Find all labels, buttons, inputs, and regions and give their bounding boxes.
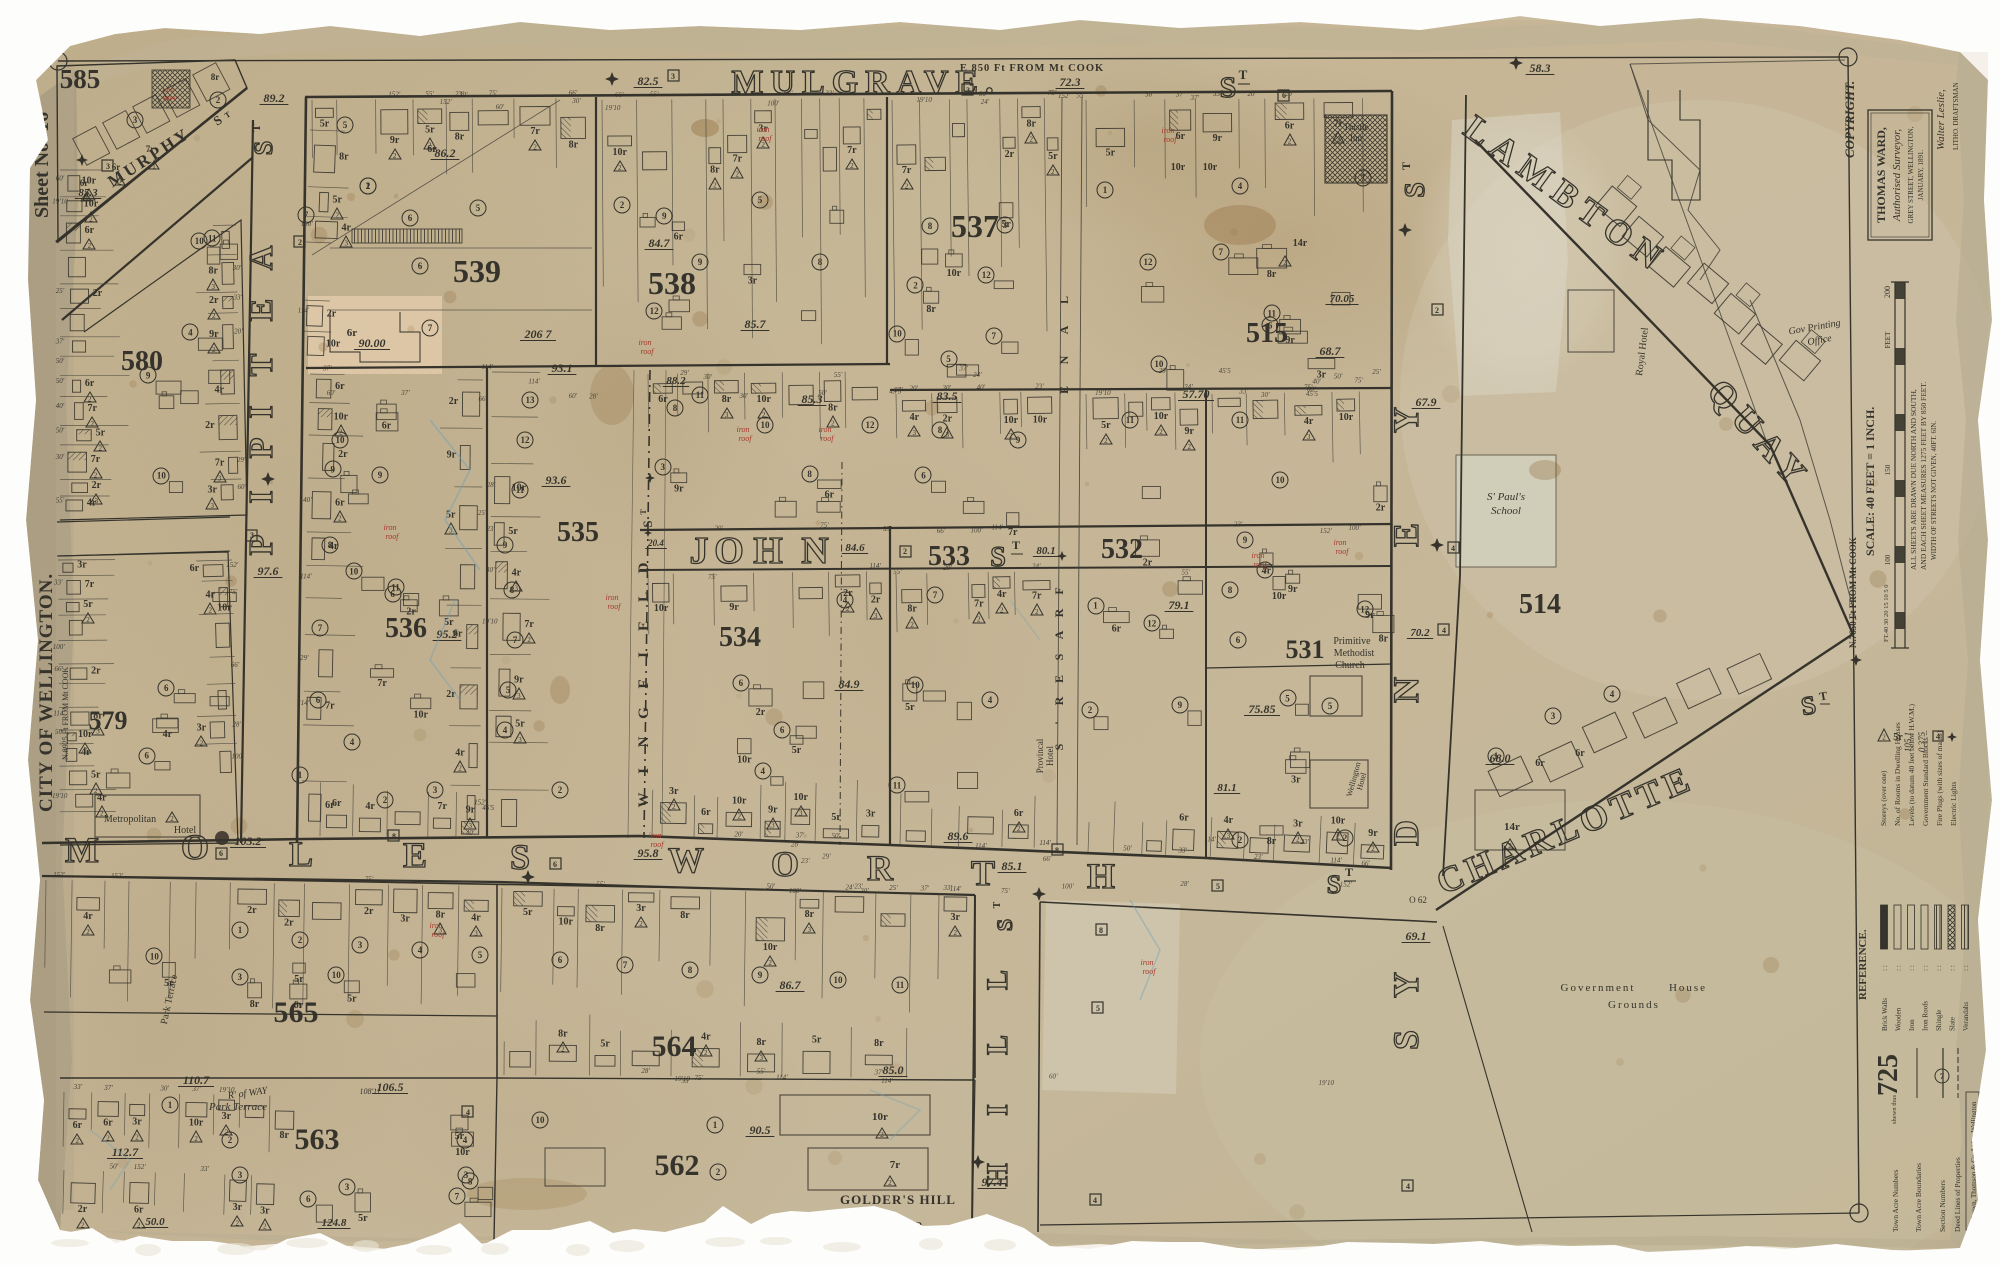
svg-text:2: 2 <box>905 182 909 190</box>
svg-text:5: 5 <box>343 120 348 130</box>
svg-text:2: 2 <box>1051 168 1055 176</box>
svg-text:3r: 3r <box>197 722 207 733</box>
svg-text:3r: 3r <box>669 786 679 797</box>
svg-text:24': 24' <box>1032 562 1041 570</box>
svg-text:5r: 5r <box>96 427 106 438</box>
svg-text:Grounds: Grounds <box>1608 999 1660 1011</box>
svg-text:S: S <box>992 919 1017 931</box>
svg-text:24': 24' <box>973 371 982 379</box>
svg-text:725: 725 <box>1873 1054 1904 1096</box>
svg-text:20.4: 20.4 <box>647 538 664 548</box>
svg-text:2: 2 <box>1187 443 1191 451</box>
svg-text:roof: roof <box>431 930 446 939</box>
svg-text:Electric Lights: Electric Lights <box>1949 782 1958 826</box>
svg-text:3: 3 <box>661 462 666 472</box>
svg-text:10r: 10r <box>756 394 771 405</box>
svg-text:585: 585 <box>60 64 101 94</box>
svg-text:2: 2 <box>736 171 740 179</box>
svg-text:7r: 7r <box>377 678 387 689</box>
svg-text:12: 12 <box>982 270 992 280</box>
svg-text:37': 37' <box>1175 90 1185 98</box>
svg-text:4: 4 <box>466 1108 470 1117</box>
svg-text:1: 1 <box>713 1120 718 1130</box>
svg-text:Town Acre Boundaries: Town Acre Boundaries <box>1914 1163 1923 1232</box>
svg-text:19'10: 19'10 <box>1095 389 1111 397</box>
svg-text:8r: 8r <box>756 1037 766 1048</box>
svg-text:45'5: 45'5 <box>1306 390 1318 398</box>
svg-text:40': 40' <box>1313 378 1322 386</box>
svg-text:4: 4 <box>761 766 766 776</box>
svg-text:S: S <box>640 520 655 527</box>
svg-text:3r: 3r <box>400 914 410 925</box>
svg-text:I: I <box>981 1104 1014 1116</box>
svg-text:6: 6 <box>316 695 321 705</box>
svg-text:6r: 6r <box>85 378 95 389</box>
svg-text:66': 66' <box>937 527 946 535</box>
svg-text:11: 11 <box>208 233 217 243</box>
svg-text:6r: 6r <box>825 490 835 501</box>
svg-text:2: 2 <box>672 803 676 811</box>
svg-text:4: 4 <box>843 595 848 605</box>
svg-text:Walter Leslie,: Walter Leslie, <box>1935 89 1947 150</box>
svg-text:AND EACH SHEET MEASURES 1275 F: AND EACH SHEET MEASURES 1275 FEET BY 850… <box>1919 382 1928 570</box>
svg-text:Verandahs: Verandahs <box>1962 1002 1970 1031</box>
svg-text:6: 6 <box>306 1194 311 1204</box>
svg-text:3r: 3r <box>1291 774 1301 785</box>
svg-text:7: 7 <box>1219 247 1224 257</box>
svg-text:2: 2 <box>561 1045 565 1053</box>
svg-text:5: 5 <box>1285 693 1290 703</box>
svg-text:8r: 8r <box>874 1038 884 1049</box>
svg-text:114': 114' <box>528 378 540 386</box>
svg-text:10: 10 <box>911 680 921 690</box>
svg-text:5: 5 <box>478 950 483 960</box>
svg-text:2r: 2r <box>1143 557 1153 568</box>
svg-text:2: 2 <box>200 739 204 747</box>
svg-text:10r: 10r <box>1331 816 1346 827</box>
svg-text:REFERENCE.: REFERENCE. <box>1857 929 1869 1000</box>
svg-text:33': 33' <box>942 884 952 892</box>
svg-text:152': 152' <box>53 871 66 879</box>
svg-text:20': 20' <box>714 525 723 533</box>
svg-text:L: L <box>1057 296 1071 304</box>
svg-text:60': 60' <box>1049 1072 1058 1080</box>
svg-text:Fire Plugs (with sizes of main: Fire Plugs (with sizes of mains) <box>1935 730 1944 826</box>
svg-text:6r: 6r <box>1575 748 1585 759</box>
svg-text:85.7: 85.7 <box>745 317 767 331</box>
svg-text:50': 50' <box>110 1162 119 1170</box>
svg-text:66': 66' <box>1043 855 1052 863</box>
svg-text:5r: 5r <box>515 719 525 730</box>
svg-text:D: D <box>636 562 652 573</box>
svg-text:Slate: Slate <box>1949 1017 1957 1031</box>
svg-text:7r: 7r <box>847 145 857 156</box>
svg-text:iron: iron <box>648 831 661 840</box>
svg-text:23': 23' <box>1254 853 1263 861</box>
svg-text:83.5: 83.5 <box>937 389 958 403</box>
svg-text:2r: 2r <box>1005 149 1015 160</box>
svg-text:5r: 5r <box>508 526 518 537</box>
svg-text:Shingle: Shingle <box>1935 1010 1943 1031</box>
svg-text:10: 10 <box>332 970 342 980</box>
svg-text:8r: 8r <box>436 910 446 921</box>
svg-text:60': 60' <box>496 103 505 111</box>
svg-text:4: 4 <box>503 725 508 735</box>
svg-text:6: 6 <box>1282 91 1286 100</box>
svg-text:10r: 10r <box>872 1111 888 1123</box>
svg-text:JANUARY, 1891.: JANUARY, 1891. <box>1917 149 1925 200</box>
svg-text:2: 2 <box>1343 833 1348 843</box>
svg-text:8: 8 <box>1055 846 1059 855</box>
svg-text:4: 4 <box>988 695 993 705</box>
svg-text:12: 12 <box>1147 618 1157 628</box>
svg-text:84.7: 84.7 <box>649 236 671 250</box>
svg-text:86.2: 86.2 <box>435 146 456 160</box>
svg-text:N: N <box>801 530 828 572</box>
svg-text:8r: 8r <box>558 1028 568 1039</box>
svg-text:11: 11 <box>893 781 902 791</box>
svg-text:3r: 3r <box>636 903 646 914</box>
svg-text:4r: 4r <box>83 911 93 922</box>
svg-text:10r: 10r <box>793 792 808 803</box>
svg-text:50': 50' <box>56 377 65 385</box>
svg-text:5r: 5r <box>812 1034 822 1045</box>
svg-text:50': 50' <box>1334 372 1343 380</box>
svg-text:Church: Church <box>1335 660 1364 671</box>
svg-text:2: 2 <box>106 1135 110 1143</box>
svg-text:6: 6 <box>780 725 785 735</box>
svg-text:539: 539 <box>453 253 501 289</box>
svg-text:70.2: 70.2 <box>1410 627 1430 639</box>
svg-text:10r: 10r <box>334 412 349 423</box>
svg-text:531: 531 <box>1286 635 1325 664</box>
svg-text:2: 2 <box>335 212 339 220</box>
svg-text:2r: 2r <box>338 449 348 460</box>
svg-text:66': 66' <box>1362 859 1371 867</box>
svg-text:28': 28' <box>1180 880 1189 888</box>
svg-text:2: 2 <box>76 1137 80 1145</box>
svg-text:10r: 10r <box>1171 162 1186 173</box>
svg-text:55': 55' <box>1182 568 1191 576</box>
svg-text:roof: roof <box>1335 547 1350 556</box>
svg-text:5: 5 <box>758 195 763 205</box>
svg-text:7r: 7r <box>524 619 534 630</box>
svg-text:T: T <box>1012 538 1020 552</box>
svg-text:6r: 6r <box>332 798 342 809</box>
svg-text:Brick Walls: Brick Walls <box>1881 998 1889 1031</box>
svg-text:2r: 2r <box>209 295 219 306</box>
svg-text:37': 37' <box>400 389 410 397</box>
svg-text:79.1: 79.1 <box>1169 598 1190 612</box>
svg-text:3: 3 <box>218 475 222 483</box>
svg-text:19'10: 19'10 <box>52 197 68 205</box>
svg-text:68.7: 68.7 <box>1320 344 1342 358</box>
svg-text:12: 12 <box>521 435 531 445</box>
svg-text:72.3: 72.3 <box>1060 75 1081 89</box>
svg-text:82.5: 82.5 <box>638 74 659 88</box>
svg-text:5r: 5r <box>600 1038 610 1049</box>
svg-text:9r: 9r <box>768 804 778 815</box>
svg-text:8r: 8r <box>569 140 579 151</box>
svg-text:4: 4 <box>350 737 355 747</box>
svg-text:4r: 4r <box>455 748 465 759</box>
svg-text:1: 1 <box>298 770 303 780</box>
svg-text:T: T <box>639 509 648 515</box>
svg-text:4: 4 <box>463 1135 468 1145</box>
svg-text:515: 515 <box>1246 318 1288 349</box>
svg-text:30': 30' <box>159 1085 169 1093</box>
svg-text:roof: roof <box>1253 560 1268 569</box>
svg-text:A: A <box>1057 325 1071 334</box>
svg-text:R: R <box>1052 608 1066 617</box>
svg-text:75.85: 75.85 <box>1249 702 1276 716</box>
svg-text:9: 9 <box>698 257 703 267</box>
svg-text:75': 75' <box>708 573 717 581</box>
svg-text:10r: 10r <box>1004 415 1019 426</box>
svg-text:N: N <box>1057 355 1071 364</box>
svg-text:2: 2 <box>383 795 388 805</box>
svg-text:8r: 8r <box>805 909 815 920</box>
svg-text:1: 1 <box>238 925 243 935</box>
svg-text:2: 2 <box>1159 428 1163 436</box>
svg-text:T: T <box>243 353 280 376</box>
svg-text:7: 7 <box>428 323 433 333</box>
svg-text:114': 114' <box>1330 857 1342 865</box>
svg-text:8: 8 <box>938 425 943 435</box>
svg-text:535: 535 <box>557 517 599 548</box>
svg-text:2: 2 <box>1029 136 1033 144</box>
svg-text:6r: 6r <box>335 381 345 392</box>
svg-text:6: 6 <box>219 849 223 858</box>
svg-text:75': 75' <box>229 588 238 596</box>
svg-text:3r: 3r <box>1293 818 1303 829</box>
svg-text:100': 100' <box>789 887 802 895</box>
svg-text:114': 114' <box>869 562 881 570</box>
svg-text:7: 7 <box>318 623 323 633</box>
svg-text:5r: 5r <box>332 195 342 206</box>
svg-text:: :: : : <box>1922 965 1930 971</box>
svg-text:2r: 2r <box>91 666 101 677</box>
svg-text:90.5: 90.5 <box>750 1123 771 1137</box>
svg-text:2r: 2r <box>93 288 103 299</box>
svg-text:4: 4 <box>418 945 423 955</box>
svg-text:19'10: 19'10 <box>482 618 498 626</box>
svg-text:67.9: 67.9 <box>1416 395 1437 409</box>
svg-text:37': 37' <box>795 832 805 840</box>
svg-text:6r: 6r <box>1535 758 1545 769</box>
svg-text:23': 23' <box>1234 521 1243 529</box>
svg-text:2: 2 <box>1104 437 1108 445</box>
svg-text:3: 3 <box>433 785 438 795</box>
svg-text:6r: 6r <box>1179 813 1189 824</box>
svg-text:55': 55' <box>834 371 843 379</box>
svg-text:Thistle: Thistle <box>1344 122 1369 132</box>
svg-text:2: 2 <box>850 162 854 170</box>
svg-text:5r: 5r <box>83 599 93 610</box>
svg-text:I: I <box>636 768 652 774</box>
svg-text:S: S <box>1220 71 1237 104</box>
svg-text:75': 75' <box>1001 887 1010 895</box>
svg-text:2: 2 <box>263 1223 267 1231</box>
svg-text:7r: 7r <box>437 801 447 812</box>
svg-text:50.0: 50.0 <box>145 1216 165 1228</box>
svg-text:2: 2 <box>88 242 92 250</box>
svg-text:Primitive: Primitive <box>1333 636 1371 647</box>
svg-text:85.3: 85.3 <box>78 187 98 199</box>
svg-text:579: 579 <box>89 706 128 735</box>
svg-text:D: D <box>1386 820 1426 846</box>
svg-text:114': 114' <box>298 699 310 707</box>
svg-text:P: P <box>243 438 280 459</box>
svg-text:66': 66' <box>479 395 488 403</box>
svg-text:10r: 10r <box>654 603 669 614</box>
svg-text:2: 2 <box>86 616 90 624</box>
svg-text:37': 37' <box>103 1084 113 1092</box>
svg-text:55': 55' <box>893 568 902 576</box>
svg-text:3: 3 <box>725 411 729 419</box>
svg-text:152': 152' <box>388 90 401 98</box>
svg-text:5: 5 <box>1216 882 1220 891</box>
svg-text:W: W <box>668 840 704 880</box>
svg-text:2: 2 <box>393 152 397 160</box>
svg-text:T: T <box>992 901 1003 908</box>
svg-text:6r: 6r <box>1014 808 1024 819</box>
svg-text:Town Acre Numbers: Town Acre Numbers <box>1891 1170 1900 1232</box>
svg-text:Methodist: Methodist <box>1334 648 1375 659</box>
svg-text:100': 100' <box>232 753 245 761</box>
svg-text:7r: 7r <box>530 126 540 137</box>
svg-text:ALL SHEETS ARE DRAWN DUE NORTH: ALL SHEETS ARE DRAWN DUE NORTH AND SOUTH… <box>1909 389 1918 570</box>
svg-text:5: 5 <box>946 354 951 364</box>
svg-text:I: I <box>636 652 652 658</box>
svg-text:6: 6 <box>553 860 557 869</box>
svg-text:93.6: 93.6 <box>546 473 567 487</box>
svg-text:2r: 2r <box>364 906 374 917</box>
svg-text:2: 2 <box>1371 845 1375 853</box>
svg-text:6r: 6r <box>335 498 345 509</box>
svg-text:5r: 5r <box>831 812 841 823</box>
svg-text:10r: 10r <box>1272 591 1287 602</box>
svg-text:: :: : : <box>1881 965 1889 971</box>
svg-text:L: L <box>981 1035 1014 1055</box>
svg-text:8r: 8r <box>208 266 218 277</box>
svg-text:iron: iron <box>818 425 831 434</box>
svg-text:90.00: 90.00 <box>359 336 386 350</box>
svg-text:roof: roof <box>758 134 773 143</box>
svg-text:9r: 9r <box>209 329 219 340</box>
svg-text:Government: Government <box>1561 982 1636 994</box>
svg-text:7: 7 <box>1361 173 1366 183</box>
svg-text:33': 33' <box>199 1165 209 1173</box>
svg-text:20': 20' <box>910 385 919 393</box>
svg-text:3: 3 <box>211 283 215 291</box>
svg-text:19'10: 19'10 <box>916 96 932 104</box>
svg-text:4r: 4r <box>910 412 920 423</box>
svg-text:37': 37' <box>920 884 930 892</box>
svg-text:86.7: 86.7 <box>780 978 802 992</box>
svg-text:40': 40' <box>303 496 312 504</box>
svg-text:Y: Y <box>1386 972 1426 998</box>
svg-text:23': 23' <box>486 525 495 533</box>
svg-text:2: 2 <box>99 444 103 452</box>
svg-text:29': 29' <box>680 369 689 377</box>
svg-text:12: 12 <box>650 306 660 316</box>
svg-text:85.0: 85.0 <box>883 1063 904 1077</box>
svg-text:2: 2 <box>1435 306 1439 315</box>
svg-text:2r: 2r <box>871 595 881 606</box>
svg-text:4: 4 <box>1610 689 1615 699</box>
svg-text:3r: 3r <box>77 560 87 571</box>
svg-text:2: 2 <box>913 281 918 291</box>
svg-text:4r: 4r <box>997 589 1007 600</box>
svg-text:19'10: 19'10 <box>1319 1079 1335 1087</box>
svg-text:5r: 5r <box>1101 420 1111 431</box>
svg-text:29': 29' <box>822 852 831 860</box>
svg-text:7: 7 <box>1940 1072 1944 1081</box>
svg-text:45'5: 45'5 <box>482 804 494 812</box>
svg-text:3: 3 <box>515 584 519 592</box>
svg-text:Section Numbers: Section Numbers <box>1938 1180 1947 1232</box>
svg-text:4r: 4r <box>81 747 91 758</box>
svg-text:3r: 3r <box>866 809 876 820</box>
svg-text:SCALE: 40 FEET = 1 INCH.: SCALE: 40 FEET = 1 INCH. <box>1863 407 1877 556</box>
svg-text:roof: roof <box>1163 135 1178 144</box>
svg-text:3: 3 <box>517 692 521 700</box>
svg-text:8r: 8r <box>907 604 917 615</box>
svg-text:55': 55' <box>883 525 892 533</box>
svg-text:6r: 6r <box>1176 131 1186 142</box>
svg-text:2r: 2r <box>756 707 766 718</box>
svg-text:3r: 3r <box>132 1117 142 1128</box>
svg-text:iron: iron <box>736 425 749 434</box>
svg-text:6r: 6r <box>701 807 711 818</box>
svg-text:E: E <box>403 835 427 875</box>
svg-text:3: 3 <box>358 940 363 950</box>
svg-text:2: 2 <box>1035 608 1039 616</box>
svg-text:5r: 5r <box>320 118 330 129</box>
svg-text:7: 7 <box>623 960 628 970</box>
svg-text:7r: 7r <box>1008 527 1018 538</box>
svg-text:7r: 7r <box>91 454 101 465</box>
svg-text:iron: iron <box>1251 551 1264 560</box>
svg-text:Inn: Inn <box>1350 133 1362 143</box>
svg-text:9r: 9r <box>514 675 524 686</box>
svg-text:200: 200 <box>1883 286 1892 298</box>
svg-text:4r: 4r <box>341 223 351 234</box>
svg-text:6r: 6r <box>134 1204 144 1215</box>
svg-text:97.4: 97.4 <box>982 1175 1003 1189</box>
svg-text:114': 114' <box>975 842 987 850</box>
svg-text:7r: 7r <box>902 165 912 176</box>
svg-text:6: 6 <box>145 751 150 761</box>
svg-text:I: I <box>243 490 280 503</box>
svg-text:30': 30' <box>55 453 65 461</box>
svg-text:37': 37' <box>322 364 332 372</box>
svg-text:6r: 6r <box>674 232 684 243</box>
svg-text:8r: 8r <box>455 131 465 142</box>
svg-text:3: 3 <box>759 1054 763 1062</box>
svg-text:10r: 10r <box>1203 162 1218 173</box>
svg-text:7: 7 <box>933 590 938 600</box>
svg-text:roof: roof <box>385 532 400 541</box>
svg-text:114': 114' <box>482 363 494 371</box>
svg-text:3: 3 <box>250 531 254 540</box>
svg-text:55': 55' <box>1077 92 1086 100</box>
svg-text:4r: 4r <box>1304 416 1314 427</box>
svg-text:5r: 5r <box>905 702 915 713</box>
svg-text:9r: 9r <box>1213 133 1223 144</box>
svg-text:CITY OF WELLINGTON.: CITY OF WELLINGTON. <box>36 573 57 812</box>
